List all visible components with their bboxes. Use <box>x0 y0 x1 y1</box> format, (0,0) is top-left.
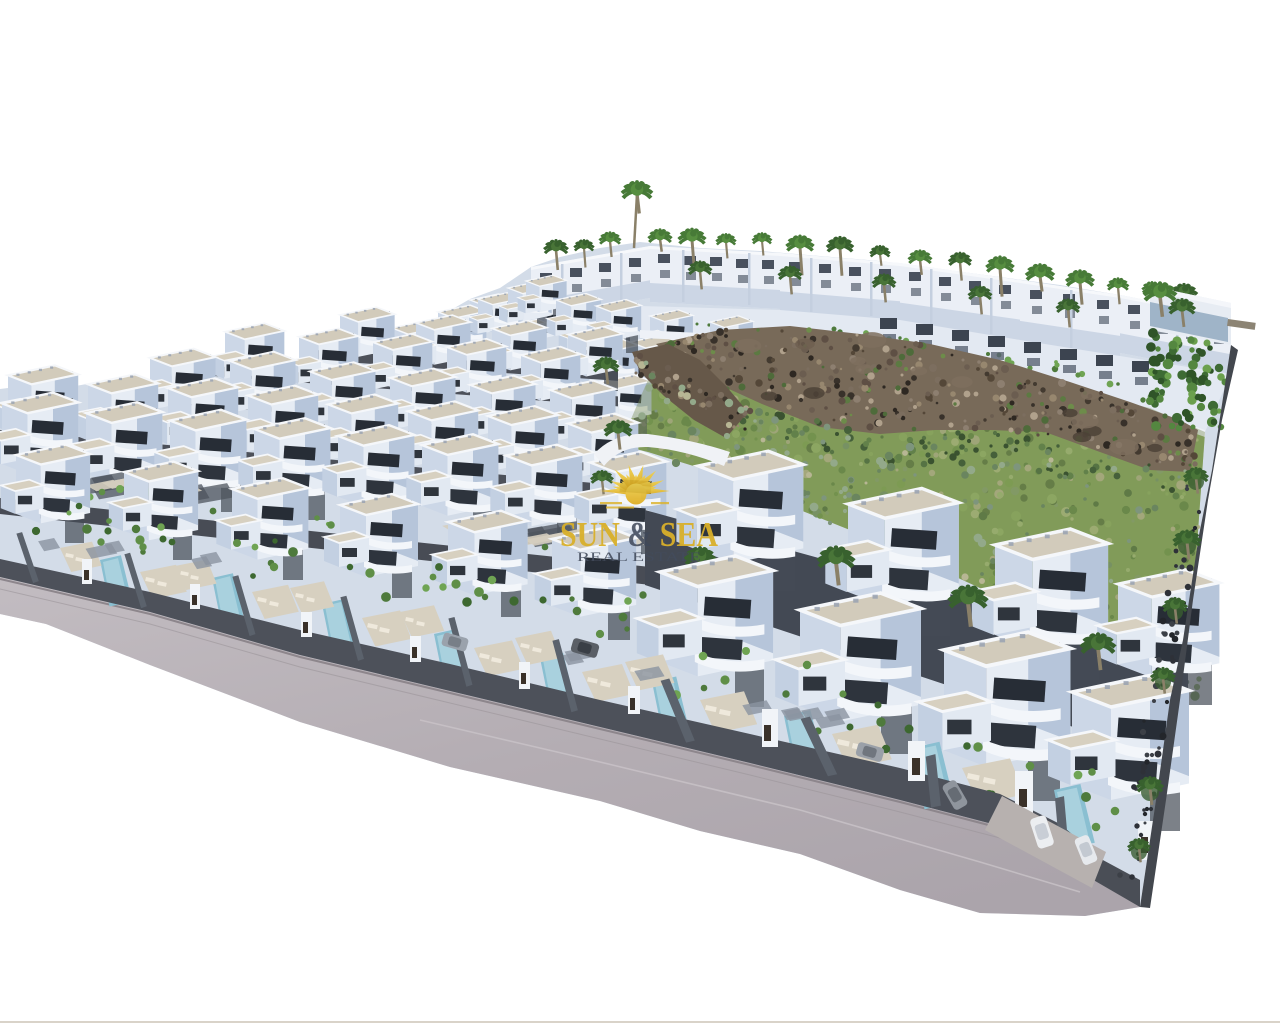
svg-text:REAL ESTATE: REAL ESTATE <box>577 550 702 564</box>
svg-text:SUN & SEA: SUN & SEA <box>560 515 719 554</box>
